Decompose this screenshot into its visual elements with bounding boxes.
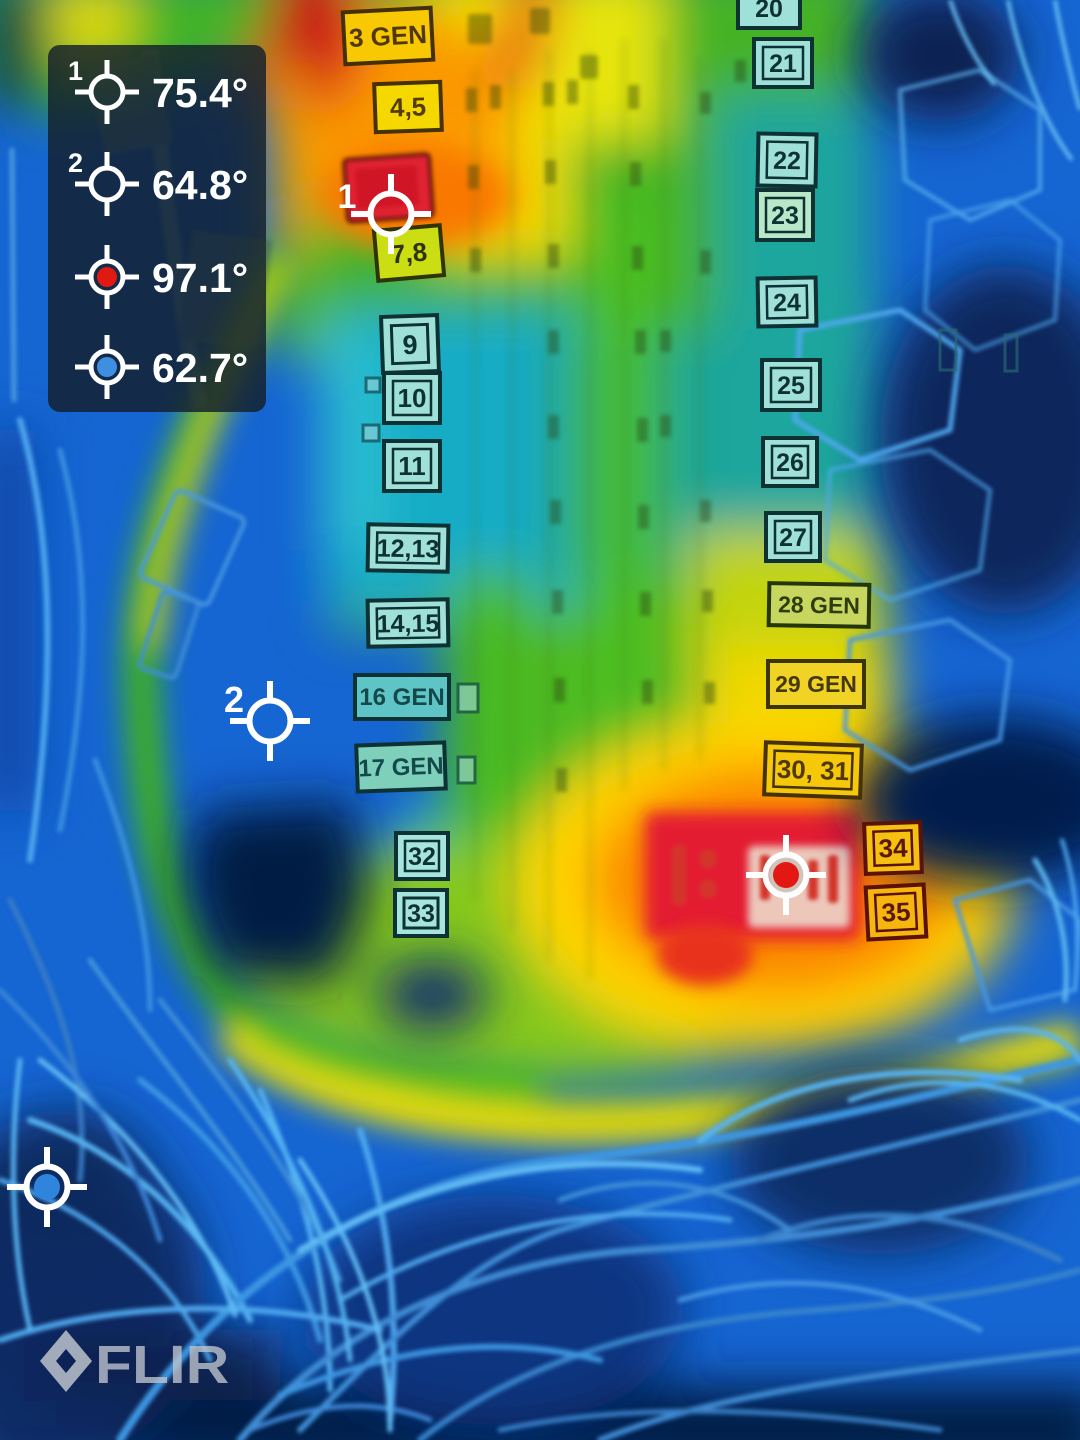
svg-text:1: 1 xyxy=(68,56,83,86)
svg-text:11: 11 xyxy=(398,451,426,481)
svg-text:30, 31: 30, 31 xyxy=(776,754,849,787)
svg-text:2: 2 xyxy=(68,148,83,178)
svg-text:29 GEN: 29 GEN xyxy=(775,671,857,697)
svg-text:23: 23 xyxy=(771,202,799,230)
svg-text:28 GEN: 28 GEN xyxy=(778,591,860,618)
svg-text:17 GEN: 17 GEN xyxy=(358,753,444,783)
svg-text:21: 21 xyxy=(769,50,797,78)
svg-text:64.8°: 64.8° xyxy=(152,162,248,208)
svg-text:35: 35 xyxy=(881,896,911,927)
svg-text:33: 33 xyxy=(407,900,435,928)
svg-text:4,5: 4,5 xyxy=(389,91,426,122)
svg-text:25: 25 xyxy=(777,372,805,400)
svg-text:3 GEN: 3 GEN xyxy=(348,19,427,53)
svg-text:FLIR: FLIR xyxy=(95,1335,229,1395)
svg-text:26: 26 xyxy=(776,449,804,477)
svg-text:62.7°: 62.7° xyxy=(152,345,248,391)
svg-text:34: 34 xyxy=(878,832,908,863)
svg-text:14,15: 14,15 xyxy=(376,609,439,638)
svg-text:75.4°: 75.4° xyxy=(152,70,248,116)
svg-text:16 GEN: 16 GEN xyxy=(359,684,444,711)
svg-text:32: 32 xyxy=(408,843,436,871)
svg-text:20: 20 xyxy=(755,0,783,23)
svg-text:1: 1 xyxy=(338,178,357,216)
svg-text:27: 27 xyxy=(779,524,807,552)
svg-text:22: 22 xyxy=(773,147,801,175)
svg-text:12,13: 12,13 xyxy=(376,534,439,563)
svg-text:7,8: 7,8 xyxy=(390,236,429,269)
svg-text:9: 9 xyxy=(402,330,418,361)
svg-text:10: 10 xyxy=(398,383,427,413)
svg-text:24: 24 xyxy=(773,289,801,317)
svg-text:2: 2 xyxy=(224,679,244,720)
svg-text:97.1°: 97.1° xyxy=(152,255,248,301)
